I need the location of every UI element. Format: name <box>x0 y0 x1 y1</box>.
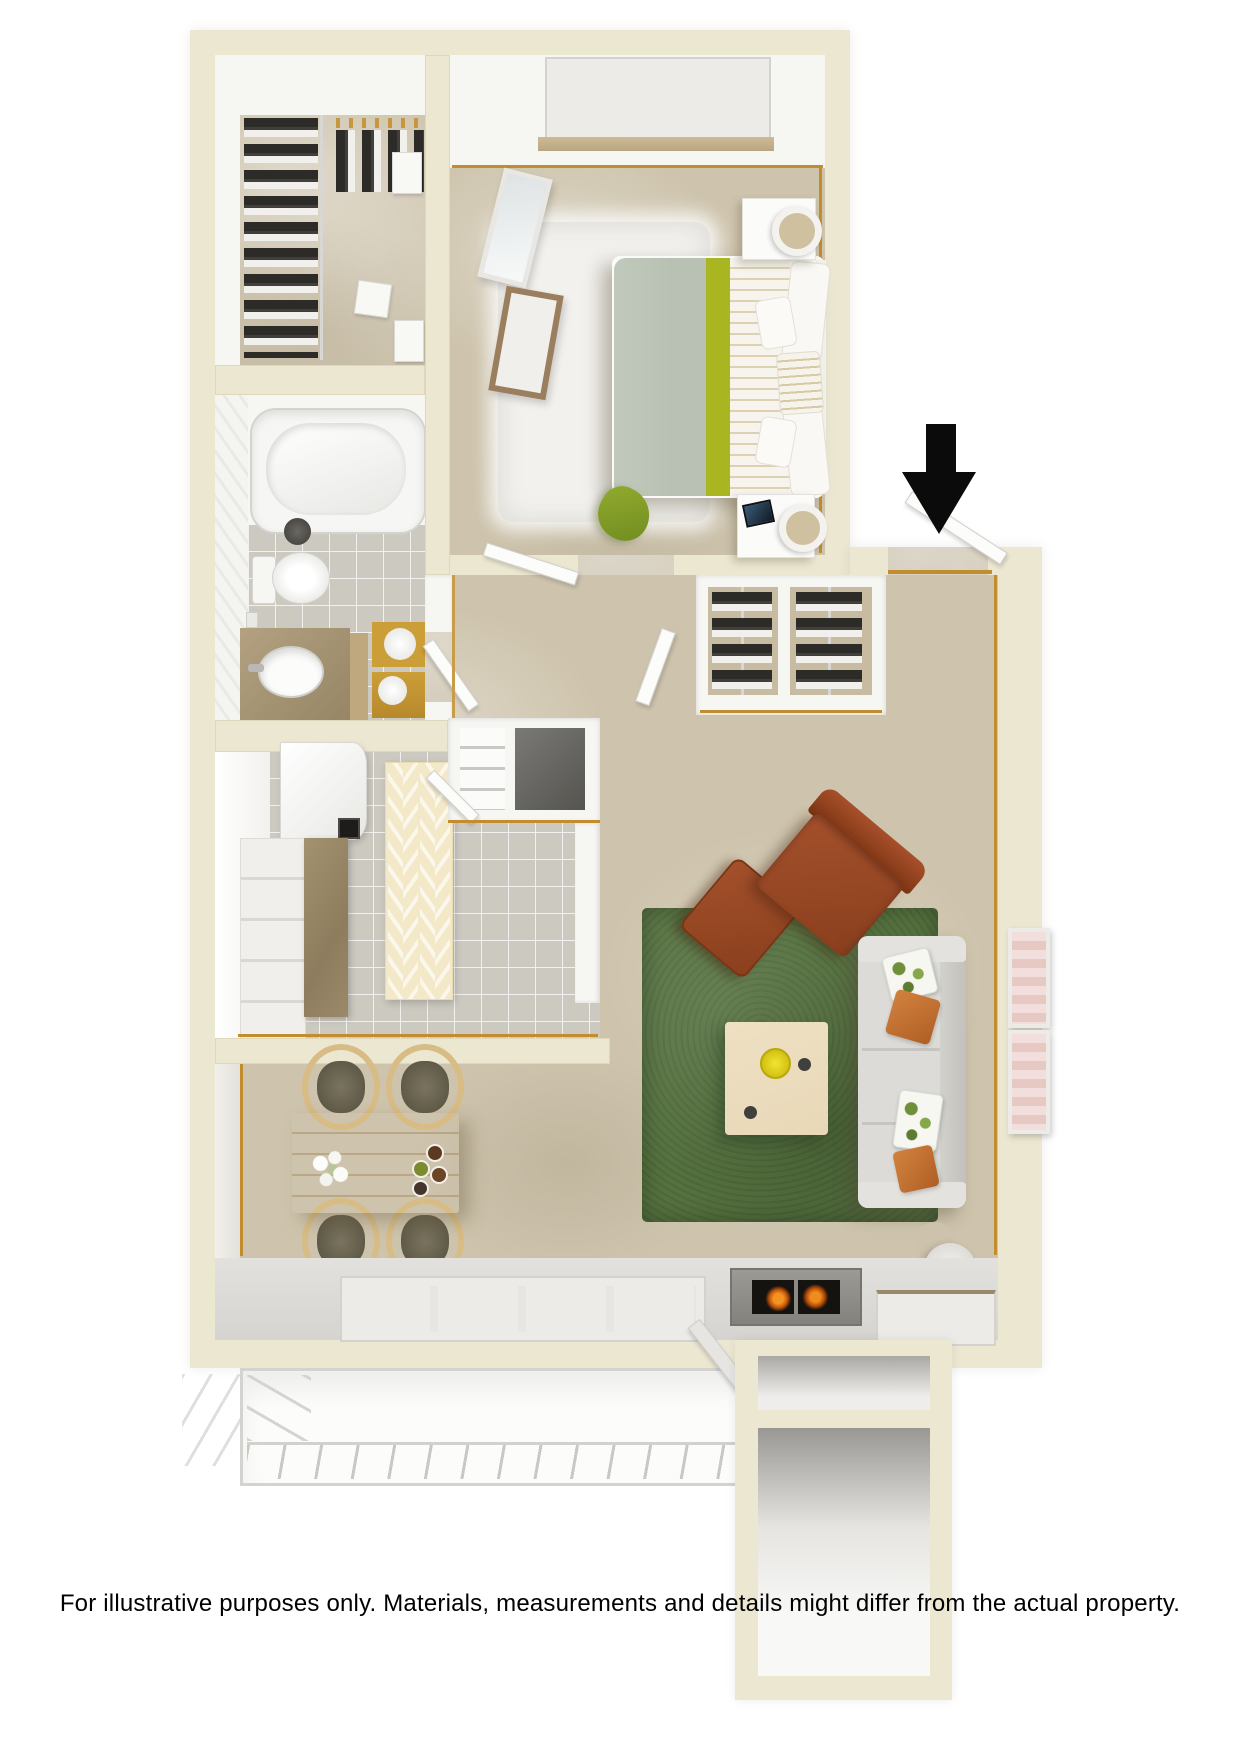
living-baseboard <box>994 575 997 1255</box>
bedroom-doorway <box>578 555 674 575</box>
window-glass <box>350 1286 696 1332</box>
bathtub <box>250 408 426 534</box>
table-lamp <box>779 504 827 552</box>
hanging-clothes <box>796 592 862 690</box>
kitchen-cabinets <box>240 838 306 1039</box>
closet-baseboard <box>700 710 882 713</box>
coffee-cup <box>412 1180 429 1197</box>
vanity-sink <box>258 646 324 698</box>
chevron-pattern <box>420 763 435 999</box>
storage-cell-floor <box>758 1356 930 1410</box>
utility-closet-floor <box>515 728 585 810</box>
coffee-cup <box>430 1166 448 1184</box>
patio-balusters <box>247 1442 757 1479</box>
patio-railing-hatch <box>247 1375 311 1441</box>
fireplace <box>730 1268 862 1326</box>
floor-plan: For illustrative purposes only. Material… <box>0 0 1240 1754</box>
kitchen-counter <box>304 838 348 1017</box>
patio <box>240 1368 764 1486</box>
table-decor <box>744 1106 757 1119</box>
entry-arrow-icon <box>926 424 956 474</box>
bed-duvet-sage <box>614 258 710 496</box>
table-decor <box>798 1058 811 1071</box>
clothes-hangers <box>336 118 424 128</box>
kitchen-runner-rug <box>385 762 453 1000</box>
fruit-bowl <box>760 1048 791 1079</box>
trash-can <box>284 518 311 545</box>
hanging-clothes <box>712 592 772 690</box>
hall-baseboard <box>452 575 455 723</box>
round-rug <box>384 628 416 660</box>
storage-box <box>394 320 424 362</box>
wall-art-frame <box>1008 1030 1050 1134</box>
toilet-bowl <box>272 552 330 604</box>
table-lamp <box>772 206 822 256</box>
window-sill <box>538 137 774 151</box>
wall-bath-bedroom <box>425 55 450 575</box>
storage-box <box>392 152 422 194</box>
patio-railing-shadow <box>182 1374 240 1466</box>
wall-art-frame <box>1008 928 1050 1028</box>
firebox-divider <box>794 1280 798 1314</box>
vanity-side-cabinet <box>350 633 368 720</box>
leaf-throw-pillow <box>892 1089 944 1153</box>
window-glass <box>555 67 761 131</box>
chevron-pattern <box>388 763 403 999</box>
storage-box <box>354 280 392 318</box>
bathtub-basin <box>266 423 406 515</box>
orange-throw-pillow <box>892 1144 940 1193</box>
coffee-cup <box>412 1160 430 1178</box>
sink-faucet-icon <box>248 664 264 672</box>
sofa-cushion-seam <box>862 1048 940 1051</box>
closet-rail <box>320 115 323 360</box>
fireplace-firebox <box>752 1280 840 1314</box>
bed-throw-olive <box>706 258 730 496</box>
entry-arrow-icon <box>902 472 976 534</box>
small-window <box>876 1290 996 1346</box>
window-glass <box>886 1302 986 1336</box>
hanging-clothes <box>244 118 318 358</box>
sofa-backrest <box>940 942 966 1202</box>
chevron-pattern <box>403 763 418 999</box>
kitchen-living-wall <box>575 823 600 1003</box>
dining-baseboard <box>240 1064 243 1256</box>
oven-door <box>338 818 360 839</box>
bed-pillow-striped <box>776 351 824 416</box>
sliding-glass-window <box>340 1276 706 1342</box>
toilet-paper-holder <box>246 612 258 628</box>
disclaimer-text: For illustrative purposes only. Material… <box>0 1590 1240 1618</box>
flower-vase <box>306 1148 354 1192</box>
chair-seat <box>401 1061 449 1113</box>
bedroom-window <box>545 57 771 141</box>
dining-wall-face <box>215 1064 240 1258</box>
round-rug <box>378 676 407 705</box>
chair-seat <box>317 1061 365 1113</box>
storage-cell-floor <box>758 1428 930 1676</box>
coffee-cup <box>426 1144 444 1162</box>
nook-shelves <box>460 728 505 810</box>
entry-threshold <box>888 570 992 574</box>
wall-closet-bath <box>215 365 425 395</box>
kitchen-baseboard <box>238 1034 598 1037</box>
